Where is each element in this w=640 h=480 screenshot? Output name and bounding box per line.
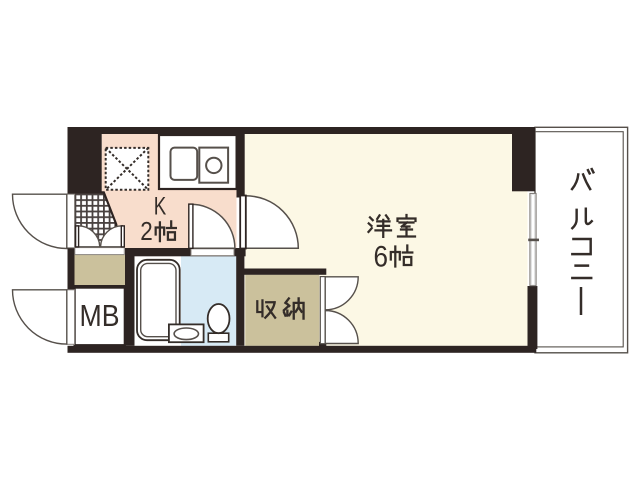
svg-text:MB: MB: [80, 298, 120, 333]
svg-text:6: 6: [374, 240, 389, 273]
svg-text:2: 2: [140, 216, 153, 246]
svg-text:K: K: [154, 192, 167, 220]
